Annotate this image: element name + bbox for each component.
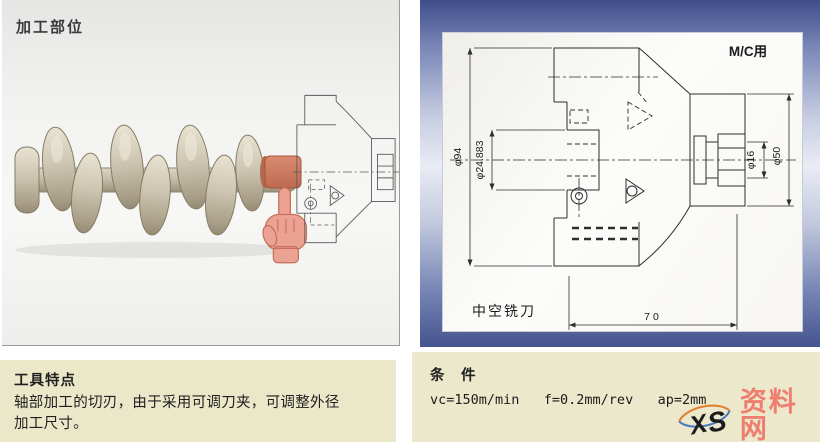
insert-details — [567, 92, 652, 239]
cutter-body — [554, 48, 745, 266]
drawing-area: φ94 φ24.883 φ16 — [442, 32, 803, 332]
watermark-text: 资料网 ZL.XS1616.COM — [740, 389, 820, 442]
crank-flange — [15, 147, 39, 213]
tool-features-title: 工具特点 — [14, 369, 386, 390]
catalog-page: 加工部位 — [0, 0, 820, 442]
cutter-sketch — [291, 86, 401, 256]
dim-outer: φ94 — [452, 48, 552, 266]
dim-length-label: 70 — [644, 311, 662, 323]
shadow — [15, 242, 299, 258]
tool-features-line2: 加工尺寸。 — [14, 414, 386, 435]
dim-pilot-label: φ16 — [745, 151, 757, 170]
dim-flange-label: φ50 — [771, 147, 783, 166]
dim-pilot: φ16 — [745, 142, 768, 178]
tool-name-label: 中空铣刀 — [472, 303, 536, 319]
dim-outer-label: φ94 — [452, 148, 464, 167]
xs-ellipse-logo: X S — [676, 398, 737, 442]
machining-location-title: 加工部位 — [16, 16, 84, 37]
crank-webs — [39, 124, 267, 237]
machine-type-label: M/C用 — [729, 44, 767, 59]
machining-location-panel: 加工部位 — [2, 0, 400, 346]
conditions-title: 条 件 — [430, 364, 820, 385]
dim-bore-label: φ24.883 — [474, 140, 486, 179]
dim-flange: φ50 — [747, 94, 794, 206]
watermark: X S 资料网 ZL.XS1616.COM — [676, 389, 820, 442]
dim-length: 70 — [569, 214, 737, 330]
tool-features-note: 工具特点 轴部加工的切刃，由于采用可调刀夹，可调整外径 加工尺寸。 — [0, 360, 396, 442]
watermark-site-name: 资料网 — [740, 389, 820, 442]
triangular-insert — [626, 179, 644, 203]
tool-features-line1: 轴部加工的切刃，由于采用可调刀夹，可调整外径 — [14, 393, 386, 414]
cutter-section-drawing: φ94 φ24.883 φ16 — [442, 32, 803, 332]
drawing-panel: φ94 φ24.883 φ16 — [420, 0, 820, 347]
